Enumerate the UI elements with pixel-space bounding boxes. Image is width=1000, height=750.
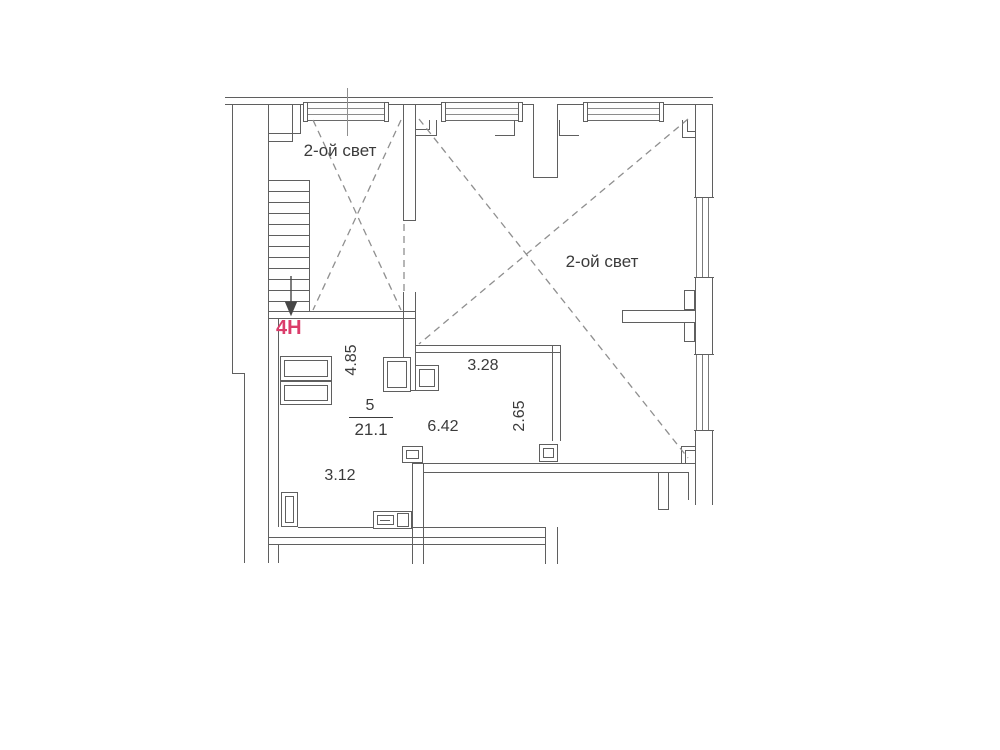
stair-direction-arrow (286, 276, 297, 315)
room-area: 21.1 (347, 420, 395, 440)
dim-bottom-horizontal: 3.12 (310, 467, 370, 485)
unit-label: 4H (276, 317, 312, 340)
room-number-divider (349, 417, 393, 418)
floor-plan: 2-ой свет 2-ой свет 4H 4.85 3.28 2.65 6.… (0, 0, 1000, 750)
dim-top-horizontal: 3.28 (453, 357, 513, 375)
page: { "plan": { "kind": "floor-plan", "label… (0, 0, 1000, 750)
dim-right-vertical: 2.65 (511, 381, 529, 451)
dim-middle-horizontal: 6.42 (413, 418, 473, 436)
double-light-label-2: 2-ой свет (542, 252, 662, 272)
plan-annotations (0, 0, 1000, 750)
room-number: 5 (348, 397, 392, 415)
double-height-cross-2 (404, 119, 688, 458)
dim-left-vertical: 4.85 (343, 325, 361, 395)
double-light-label-1: 2-ой свет (280, 141, 400, 161)
